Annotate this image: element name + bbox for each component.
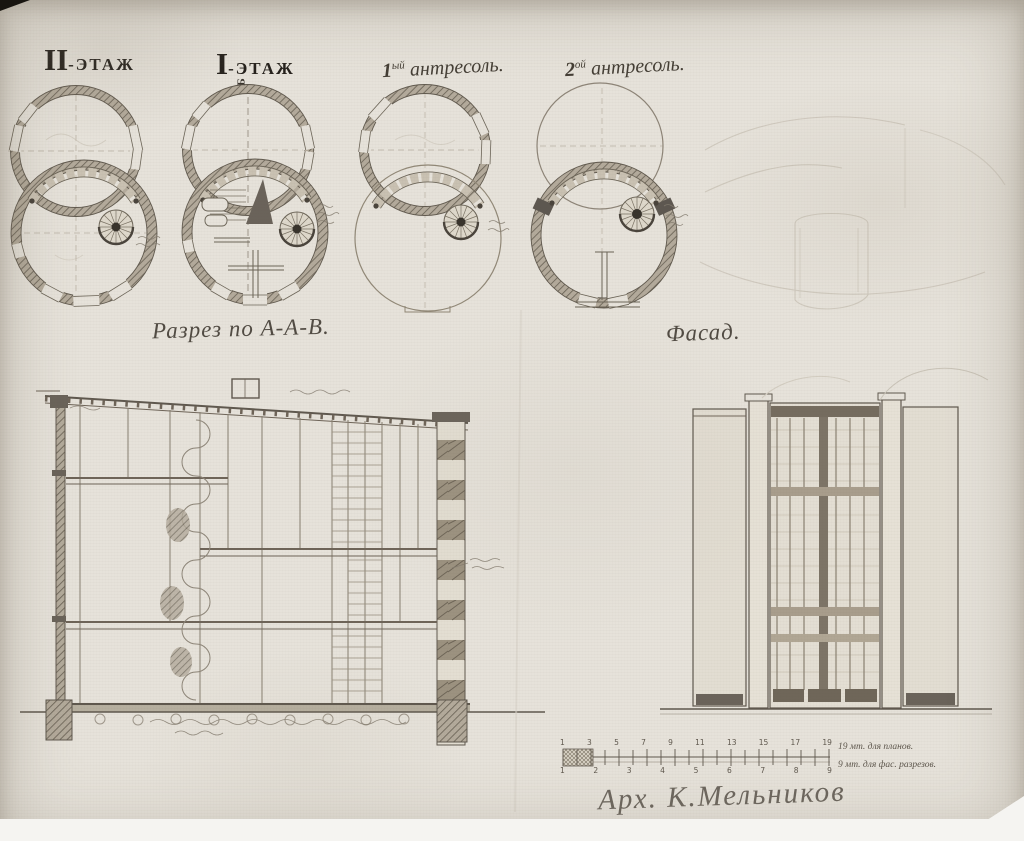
plan3-title-rest: антресоль. <box>404 54 504 81</box>
plan2-title-rest: -ЭТАЖ <box>228 59 295 78</box>
plan1-title: II-ЭТАЖ <box>44 44 135 75</box>
plan3-title-sup: ый <box>391 59 405 72</box>
scale-bottom-numbers: 123456789 <box>560 766 832 775</box>
spiral-stair-icon <box>280 212 314 246</box>
axis-marker-b: Б <box>236 78 248 85</box>
plan-first-floor <box>179 85 339 309</box>
faint-perspective-sketch <box>700 117 1005 309</box>
plan2-title-num: I <box>216 46 228 81</box>
facade-drawing <box>660 368 992 714</box>
scale-note-plans: 19 мт. для планов. <box>838 742 913 752</box>
scale-top-numbers: 135791113151719 <box>560 738 832 747</box>
section-drawing <box>20 379 545 745</box>
annotation-squiggle <box>488 221 509 232</box>
spiral-stair-icon <box>99 210 133 244</box>
plan-mezzanine-1 <box>355 85 509 313</box>
scale-bar <box>563 749 830 766</box>
plan1-title-num: II <box>44 42 68 77</box>
page-edge <box>0 819 1024 841</box>
facade-title: Фасад. <box>666 319 741 348</box>
spiral-stair-icon <box>444 205 478 239</box>
spiral-stair-icon <box>620 197 654 231</box>
plan4-title-rest: антресоль. <box>585 53 685 80</box>
stair-triangle <box>246 179 273 224</box>
plan2-title: I-ЭТАЖ <box>216 48 295 79</box>
striped-pier <box>437 419 465 745</box>
plan4-title-sup: ой <box>574 58 586 71</box>
scale-note-facade: 9 мт. для фас. разрезов. <box>838 760 936 770</box>
ladder-grid <box>332 432 382 691</box>
plan-second-floor <box>6 86 160 310</box>
plan-mezzanine-2 <box>531 83 688 311</box>
architectural-drawing <box>0 0 1024 841</box>
annotation-squiggle <box>290 390 350 394</box>
plan1-title-rest: -ЭТАЖ <box>68 55 135 74</box>
drawing-sheet: II-ЭТАЖ I-ЭТАЖ 1ый антресоль. 2ой антрес… <box>0 0 1024 841</box>
paper-crease <box>515 310 521 812</box>
section-title: Разрез по А-А-В. <box>152 314 330 345</box>
